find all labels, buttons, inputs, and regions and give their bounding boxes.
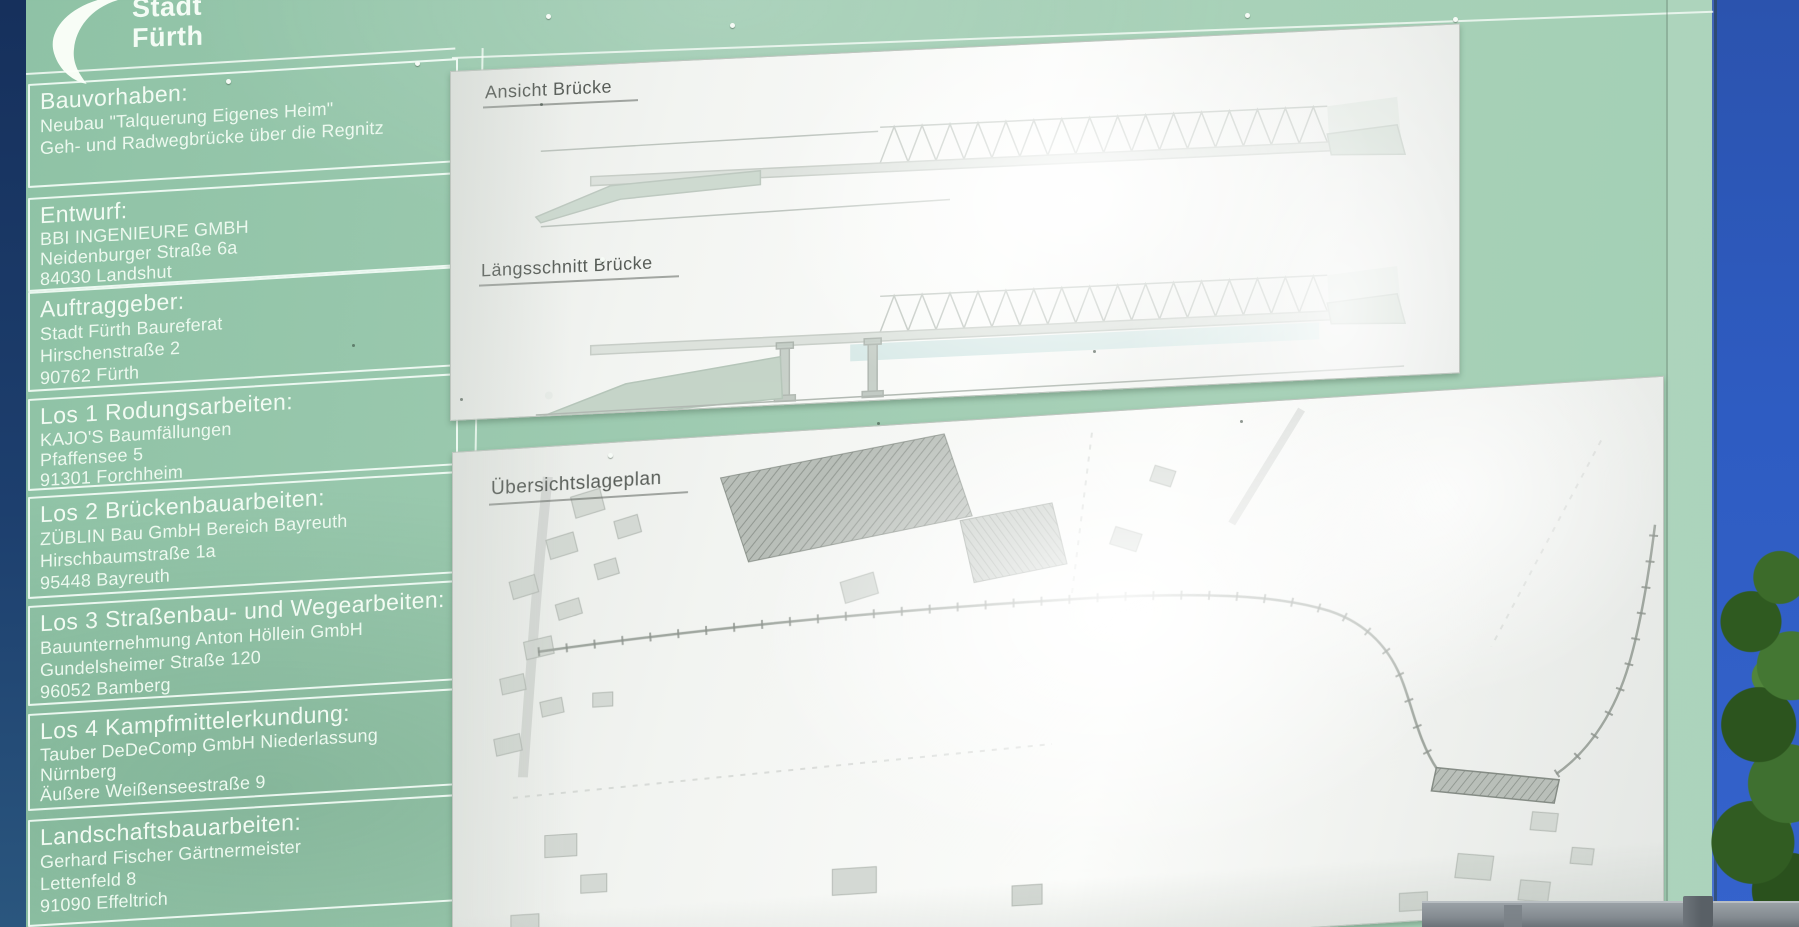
block-landschaftsbau: Landschaftsbauarbeiten: Gerhard Fischer … [28,794,458,927]
screw-dot [226,79,231,84]
screw-dot [1245,13,1250,18]
speck [1240,420,1243,423]
fence-post [1683,896,1713,927]
screw-dot [608,453,613,458]
block-los4: Los 4 Kampfmittelerkundung: Tauber DeDeC… [28,688,458,811]
map-factory-complex [721,426,1067,598]
speck [352,344,355,347]
map-buildings [494,426,1594,927]
fence-post [1504,905,1522,927]
block-los1: Los 1 Rodungsarbeiten: KAJO'S Baumfällun… [28,373,458,491]
construction-sign-photo: { "logo": { "line1": "Stadt", "line2": "… [0,0,1799,927]
screw-dot [1453,17,1458,22]
map-roads [513,391,1601,798]
tree-foliage [1703,548,1799,916]
speck [540,103,543,106]
map-bridge [1431,760,1559,811]
left-shadow-edge [0,0,26,927]
screw-dot [600,257,605,262]
panel-screw [545,391,553,399]
block-los2: Los 2 Brückenbauarbeiten: ZÜBLIN Bau Gmb… [28,471,458,599]
screw-dot [730,23,735,28]
panel-bridge-drawings: Ansicht Brücke Längsschnitt Brücke [450,23,1460,421]
block-los3: Los 3 Straßenbau- und Wegearbeiten: Bauu… [28,580,458,706]
logo-text-fuerth: Fürth [132,21,203,54]
fence-rail [1422,901,1799,927]
speck [460,398,463,401]
panel-site-plan: Übersichtslageplan [452,376,1664,927]
bridge-elevation-drawing [536,97,1405,227]
speck [1093,350,1096,353]
site-plan-drawing [453,377,1663,927]
screw-dot [415,61,420,66]
speck [877,422,880,425]
screw-dot [546,14,551,19]
